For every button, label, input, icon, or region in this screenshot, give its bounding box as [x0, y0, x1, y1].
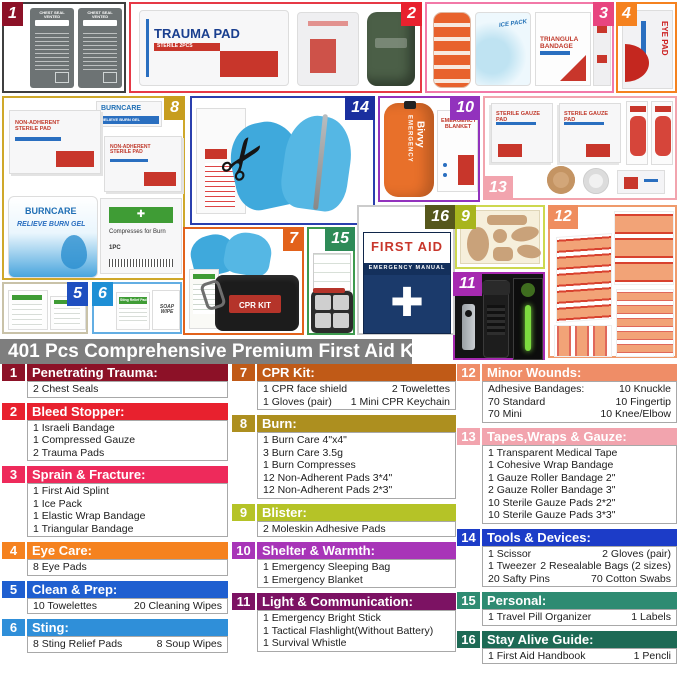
- kit-item-row: 1 Compressed Gauze: [33, 434, 222, 447]
- kit-item: 1 Israeli Bandage: [33, 422, 115, 434]
- kit-item-row: 10 Sterile Gauze Pads 2*2": [488, 497, 671, 510]
- kit-item-row: 8 Sting Relief Pads8 Soup Wipes: [33, 638, 222, 651]
- manual-title: FIRST AID: [364, 240, 450, 254]
- photo-box-bandages: 12: [548, 205, 677, 358]
- section-title: Minor Wounds:: [482, 364, 677, 381]
- kit-item: 1 Pencli: [634, 650, 671, 663]
- kit-item-row: 10 Sterile Gauze Pads 3*3": [488, 509, 671, 522]
- kit-item: 1 Burn Compresses: [263, 459, 356, 471]
- kit-item-row: 1 Travel Pill Organizer1 Labels: [488, 611, 671, 624]
- kit-item: Adhesive Bandages:: [488, 383, 584, 396]
- adhesive-bandage-stack: [614, 211, 674, 285]
- cohesive-tape-roll: [547, 166, 575, 194]
- non-adherent-pad-label: NON-ADHERENT STERILE PAD: [15, 121, 75, 133]
- product-infographic: 1 CHEST SEAL VENTED CHEST SEAL VENTED 2 …: [0, 0, 679, 673]
- kit-item: 1 Emergency Sleeping Bag: [263, 561, 390, 573]
- tactical-flashlight: [483, 280, 509, 358]
- kit-item: 12 Non-Adherent Pads 2*3": [263, 484, 392, 496]
- section-title: Personal:: [482, 592, 677, 609]
- tag-16: 16: [425, 205, 455, 229]
- kit-section-3: 3Sprain & Fracture:1 First Aid Splint1 I…: [2, 466, 228, 537]
- trauma-pad-label: TRAUMA PAD: [154, 27, 240, 41]
- tag-1: 1: [2, 2, 23, 26]
- section-number: 16: [457, 631, 480, 648]
- kit-item-row: 10 Towelettes20 Cleaning Wipes: [33, 600, 222, 613]
- tag-5: 5: [67, 282, 88, 306]
- kit-item: 1 Labels: [631, 611, 671, 624]
- kit-item: 1 Compressed Gauze: [33, 434, 135, 446]
- kit-item: 1 Elastic Wrap Bandage: [33, 510, 145, 522]
- section-title: CPR Kit:: [257, 364, 456, 381]
- kit-item-row: 1 Scissor2 Gloves (pair): [488, 548, 671, 561]
- kit-item: 1 CPR face shield: [263, 383, 347, 396]
- water-drop-graphic: [61, 235, 87, 269]
- label-sheet: [313, 253, 351, 291]
- soap-wipe-label: SOAP WIPE: [155, 305, 179, 316]
- chest-seal-label: CHEST SEAL VENTED: [80, 11, 120, 19]
- section-item-list: 1 CPR face shield2 Towelettes1 Gloves (p…: [257, 381, 456, 410]
- photo-box-sprain-fracture: 3 ICE PACK TRIANGULA BANDAGE: [425, 2, 614, 93]
- kit-section-16: 16Stay Alive Guide:1 First Aid Handbook1…: [457, 631, 677, 665]
- section-item-list: 1 Travel Pill Organizer1 Labels: [482, 609, 677, 626]
- emergency-bivvy: EMERGENCY Bivvy: [384, 103, 434, 197]
- kit-item-row: 1 Tactical Flashlight(Without Battery): [263, 625, 450, 638]
- section-item-list: 8 Eye Pads: [27, 559, 228, 576]
- cpr-pouch: CPR KIT: [215, 275, 299, 331]
- photo-box-personal: 15: [307, 227, 355, 335]
- tag-8: 8: [164, 96, 185, 120]
- section-item-list: Adhesive Bandages:10 Knuckle70 Standard1…: [482, 381, 677, 423]
- section-title: Shelter & Warmth:: [257, 542, 456, 559]
- kit-item-row: 1 Survival Whistle: [263, 637, 450, 650]
- section-number: 3: [2, 466, 25, 483]
- kit-item-row: 1 Triangular Bandage: [33, 523, 222, 536]
- tag-12: 12: [548, 205, 578, 229]
- chest-seal-packet: CHEST SEAL VENTED: [30, 8, 74, 88]
- section-title: Penetrating Trauma:: [27, 364, 228, 381]
- section-title: Clean & Prep:: [27, 581, 228, 598]
- burn-compress-label: Compresses for Burn: [109, 229, 175, 235]
- kit-item: 10 Sterile Gauze Pads 2*2": [488, 497, 615, 509]
- photo-box-clean-prep: 5: [2, 282, 88, 334]
- pbt-bandage-roll: [651, 101, 673, 165]
- section-item-list: 1 First Aid Splint1 Ice Pack1 Elastic Wr…: [27, 483, 228, 537]
- kit-item-row: 1 Burn Compresses: [263, 459, 450, 472]
- eye-pad-label: EYE PAD: [660, 21, 668, 56]
- chest-seal-packet: CHEST SEAL VENTED: [78, 8, 122, 88]
- kit-item: 1 Tweezer: [488, 560, 536, 573]
- kit-item: 10 Towelettes: [33, 600, 97, 613]
- kit-section-4: 4Eye Care:8 Eye Pads: [2, 542, 228, 576]
- section-title: Light & Communication:: [257, 593, 456, 610]
- adhesive-bandage-stack: [554, 325, 612, 357]
- glow-stick-pack: [513, 278, 543, 360]
- triangular-bandage-packet: TRIANGULA BANDAGE: [535, 12, 591, 86]
- section-number: 11: [232, 593, 255, 610]
- kit-item: 70 Mini: [488, 408, 522, 421]
- photo-box-tapes-gauze: 13 STERILE GAUZE PAD STERILE GAUZE PAD: [483, 96, 677, 200]
- splint-roll: [433, 12, 471, 88]
- triangular-bandage-label: TRIANGULA BANDAGE: [540, 37, 588, 51]
- burn-compress-packet: ✚ Compresses for Burn 1PC: [100, 198, 182, 274]
- kit-item-row: 2 Chest Seals: [33, 383, 222, 396]
- chest-seal-label: CHEST SEAL VENTED: [32, 11, 72, 19]
- kit-item-row: 1 Burn Care 4"x4": [263, 434, 450, 447]
- green-cross-icon: ✚: [109, 207, 173, 223]
- kit-section-11: 11Light & Communication:1 Emergency Brig…: [232, 593, 456, 652]
- section-number: 7: [232, 364, 255, 381]
- tag-2: 2: [401, 2, 422, 26]
- section-number: 9: [232, 504, 255, 521]
- non-adherent-pad-box: NON-ADHERENT STERILE PAD: [9, 110, 101, 174]
- kit-section-13: 13Tapes,Wraps & Gauze:1 Transparent Medi…: [457, 428, 677, 524]
- kit-item: 1 First Aid Splint: [33, 485, 109, 497]
- kit-section-12: 12Minor Wounds:Adhesive Bandages:10 Knuc…: [457, 364, 677, 423]
- kit-item-row: 12 Non-Adherent Pads 3*4": [263, 472, 450, 485]
- photo-box-burn: 8 BURNCARE RELIEVE BURN GEL NON-ADHERENT…: [2, 96, 185, 280]
- kit-section-6: 6Sting:8 Sting Relief Pads8 Soup Wipes: [2, 619, 228, 653]
- page-title: 401 Pcs Comprehensive Premium First Aid …: [0, 339, 412, 364]
- kit-item: 20 Cleaning Wipes: [134, 600, 222, 613]
- kit-item: 2 Trauma Pads: [33, 447, 104, 459]
- kit-item-row: Adhesive Bandages:10 Knuckle: [488, 383, 671, 396]
- tag-11: 11: [453, 272, 482, 296]
- kit-item-row: 70 Mini10 Knee/Elbow: [488, 408, 671, 421]
- kit-item-row: 1 Cohesive Wrap Bandage: [488, 459, 671, 472]
- kit-item-row: 1 First Aid Handbook1 Pencli: [488, 650, 671, 663]
- kit-section-10: 10Shelter & Warmth:1 Emergency Sleeping …: [232, 542, 456, 588]
- kit-section-5: 5Clean & Prep:10 Towelettes20 Cleaning W…: [2, 581, 228, 615]
- kit-section-2: 2Bleed Stopper:1 Israeli Bandage1 Compre…: [2, 403, 228, 462]
- kit-item-row: 1 Gloves (pair)1 Mini CPR Keychain: [263, 396, 450, 409]
- kit-item: 2 Chest Seals: [33, 383, 98, 395]
- kit-item: 2 Gloves (pair): [602, 548, 671, 561]
- section-title: Sting:: [27, 619, 228, 636]
- section-number: 2: [2, 403, 25, 420]
- section-number: 1: [2, 364, 25, 381]
- photo-box-moleskin: 9: [455, 205, 545, 269]
- section-number: 5: [2, 581, 25, 598]
- photo-box-manual: 16 FIRST AID EMERGENCY MANUAL ✚: [357, 205, 455, 335]
- tag-10: 10: [450, 96, 480, 120]
- kit-item: 70 Standard: [488, 396, 545, 409]
- burn-gel-box: BURNCARE RELIEVE BURN GEL: [96, 101, 162, 127]
- section-number: 12: [457, 364, 480, 381]
- section-number: 13: [457, 428, 480, 445]
- section-number: 15: [457, 592, 480, 609]
- kit-section-14: 14Tools & Devices:1 Scissor2 Gloves (pai…: [457, 529, 677, 588]
- kit-item: 1 Ice Pack: [33, 498, 82, 510]
- section-title: Bleed Stopper:: [27, 403, 228, 420]
- kit-item: 1 Burn Care 4"x4": [263, 434, 347, 446]
- kit-item: 1 Gloves (pair): [263, 396, 332, 409]
- tag-7: 7: [283, 227, 304, 251]
- kit-item: 1 Mini CPR Keychain: [351, 396, 450, 409]
- section-item-list: 1 Burn Care 4"x4"3 Burn Care 3.5g1 Burn …: [257, 432, 456, 499]
- section-number: 6: [2, 619, 25, 636]
- kit-item: 1 Tactical Flashlight(Without Battery): [263, 625, 433, 637]
- tag-15: 15: [325, 227, 355, 251]
- kit-item: 10 Fingertip: [616, 396, 671, 409]
- section-item-list: 10 Towelettes20 Cleaning Wipes: [27, 598, 228, 615]
- sting-relief-packet: Sting Relief Pad: [116, 292, 150, 330]
- kit-item-row: 1 First Aid Splint: [33, 485, 222, 498]
- adhesive-bandage-stack: [616, 289, 674, 357]
- tag-3: 3: [593, 2, 614, 26]
- kit-item: 10 Knee/Elbow: [600, 408, 671, 421]
- emergency-blanket-packet: EMERGENCY BLANKET: [437, 110, 478, 192]
- tag-13: 13: [483, 176, 513, 200]
- photo-box-light: 11: [453, 272, 545, 360]
- sterile-gauze-box: STERILE GAUZE PAD: [491, 103, 553, 163]
- first-aid-manual: FIRST AID EMERGENCY MANUAL ✚: [363, 232, 451, 334]
- kit-section-9: 9Blister:2 Moleskin Adhesive Pads: [232, 504, 456, 538]
- kit-item: 1 Triangular Bandage: [33, 523, 133, 535]
- survival-whistle: [462, 304, 475, 350]
- towelette-packet: [8, 290, 48, 330]
- section-title: Blister:: [257, 504, 456, 521]
- kit-item-row: 3 Burn Care 3.5g: [263, 447, 450, 460]
- adhesive-bandage-stack: [556, 233, 612, 323]
- kit-item-row: 1 Emergency Blanket: [263, 574, 450, 587]
- section-number: 4: [2, 542, 25, 559]
- pill-organizer: [311, 291, 353, 333]
- kit-item-row: 70 Standard10 Fingertip: [488, 396, 671, 409]
- kit-item: 1 Emergency Bright Stick: [263, 612, 381, 624]
- photo-box-bleed-stopper: 2 TRAUMA PAD STERILE 2PCS: [129, 2, 422, 93]
- burn-gel-pouch-sublabel: RELIEVE BURN GEL: [17, 221, 85, 228]
- kit-item: 10 Knuckle: [619, 383, 671, 396]
- photo-box-eye-pad: 4 EYE PAD: [616, 2, 677, 93]
- section-number: 14: [457, 529, 480, 546]
- kit-item: 8 Eye Pads: [33, 561, 87, 573]
- section-item-list: 1 Emergency Bright Stick1 Tactical Flash…: [257, 610, 456, 652]
- kit-section-1: 1Penetrating Trauma:2 Chest Seals: [2, 364, 228, 398]
- pbt-bandage-roll: [626, 101, 648, 165]
- photo-box-shelter: 10 EMERGENCY Bivvy EMERGENCY BLANKET: [378, 96, 480, 202]
- kit-item: 1 First Aid Handbook: [488, 650, 585, 663]
- kit-item: 1 Gauze Roller Bandage 2": [488, 472, 615, 484]
- white-cross-icon: ✚: [364, 277, 450, 329]
- kit-item: 70 Cotton Swabs: [591, 573, 671, 586]
- burn-compress-count: 1PC: [109, 245, 121, 251]
- bivvy-label-1: EMERGENCY: [406, 115, 412, 163]
- bandage-packet-small: [617, 170, 665, 194]
- kit-section-15: 15Personal:1 Travel Pill Organizer1 Labe…: [457, 592, 677, 626]
- section-number: 8: [232, 415, 255, 432]
- trauma-pad-packet: TRAUMA PAD STERILE 2PCS: [139, 10, 289, 86]
- ice-pack-label: ICE PACK: [498, 19, 527, 29]
- burn-gel-box-sublabel: RELIEVE BURN GEL: [101, 118, 140, 122]
- tag-6: 6: [92, 282, 113, 306]
- kit-item: 20 Safty Pins: [488, 573, 550, 586]
- clear-tape-roll: [583, 168, 609, 194]
- section-title: Stay Alive Guide:: [482, 631, 677, 648]
- kit-item-row: 1 Ice Pack: [33, 498, 222, 511]
- burn-gel-pouch: BURNCARE RELIEVE BURN GEL: [8, 196, 98, 278]
- kit-item-row: 20 Safty Pins70 Cotton Swabs: [488, 573, 671, 586]
- kit-item: 8 Soup Wipes: [157, 638, 222, 651]
- kit-item-row: 1 CPR face shield2 Towelettes: [263, 383, 450, 396]
- section-item-list: 2 Moleskin Adhesive Pads: [257, 521, 456, 538]
- section-item-list: 8 Sting Relief Pads8 Soup Wipes: [27, 636, 228, 653]
- burn-gel-box-brand: BURNCARE: [101, 105, 141, 112]
- ice-pack: ICE PACK: [475, 12, 531, 86]
- compressed-gauze-packet: [297, 12, 359, 86]
- kit-item: 3 Burn Care 3.5g: [263, 447, 343, 459]
- tag-9: 9: [455, 205, 476, 229]
- kit-item-row: 1 Elastic Wrap Bandage: [33, 510, 222, 523]
- photo-box-sting: 6 Sting Relief Pad SOAP WIPE: [92, 282, 182, 334]
- kit-item: 2 Resealable Bags (2 sizes): [540, 560, 671, 573]
- kit-item-row: 12 Non-Adherent Pads 2*3": [263, 484, 450, 497]
- emergency-blanket-label: EMERGENCY BLANKET: [441, 119, 475, 131]
- kit-item-row: 1 Tweezer2 Resealable Bags (2 sizes): [488, 560, 671, 573]
- bivvy-label-2: Bivvy: [414, 121, 425, 148]
- kit-item-row: 8 Eye Pads: [33, 561, 222, 574]
- photo-box-tools: 14 ✂: [190, 96, 375, 225]
- section-title: Sprain & Fracture:: [27, 466, 228, 483]
- kit-item-row: 1 Emergency Bright Stick: [263, 612, 450, 625]
- section-title: Eye Care:: [27, 542, 228, 559]
- non-adherent-pad-box: NON-ADHERENT STERILE PAD: [104, 136, 182, 192]
- section-title: Tapes,Wraps & Gauze:: [482, 428, 677, 445]
- kit-item: 12 Non-Adherent Pads 3*4": [263, 472, 392, 484]
- trauma-pad-sublabel: STERILE 2PCS: [157, 44, 193, 49]
- sting-relief-label: Sting Relief Pad: [120, 299, 147, 303]
- kit-item-row: 2 Trauma Pads: [33, 447, 222, 460]
- kit-item: 2 Towelettes: [392, 383, 450, 396]
- kit-item-row: 1 Israeli Bandage: [33, 422, 222, 435]
- kit-item: 1 Scissor: [488, 548, 531, 561]
- photo-box-chest-seals: 1 CHEST SEAL VENTED CHEST SEAL VENTED: [2, 2, 126, 93]
- kit-item: 1 Survival Whistle: [263, 637, 346, 649]
- list-column-right: 12Minor Wounds:Adhesive Bandages:10 Knuc…: [457, 364, 677, 669]
- cpr-pouch-label: CPR KIT: [239, 301, 271, 310]
- burn-gel-pouch-brand: BURNCARE: [25, 207, 77, 216]
- kit-section-8: 8Burn:1 Burn Care 4"x4"3 Burn Care 3.5g1…: [232, 415, 456, 499]
- kit-item: 1 Transparent Medical Tape: [488, 447, 617, 459]
- kit-item: 2 Moleskin Adhesive Pads: [263, 523, 386, 535]
- section-title: Burn:: [257, 415, 456, 432]
- list-column-left: 1Penetrating Trauma:2 Chest Seals2Bleed …: [2, 364, 228, 658]
- section-title: Tools & Devices:: [482, 529, 677, 546]
- kit-item: 8 Sting Relief Pads: [33, 638, 122, 651]
- kit-item-row: 2 Moleskin Adhesive Pads: [263, 523, 450, 536]
- section-item-list: 1 Transparent Medical Tape1 Cohesive Wra…: [482, 445, 677, 524]
- kit-item-row: 1 Transparent Medical Tape: [488, 447, 671, 460]
- manual-subtitle: EMERGENCY MANUAL: [364, 266, 450, 272]
- kit-item-row: 1 Gauze Roller Bandage 2": [488, 472, 671, 485]
- section-item-list: 2 Chest Seals: [27, 381, 228, 398]
- kit-item-row: 1 Emergency Sleeping Bag: [263, 561, 450, 574]
- section-number: 10: [232, 542, 255, 559]
- list-column-middle: 7CPR Kit:1 CPR face shield2 Towelettes1 …: [232, 364, 456, 657]
- kit-item: 2 Gauze Roller Bandage 3": [488, 484, 615, 496]
- sterile-gauze-box: STERILE GAUZE PAD: [559, 103, 621, 163]
- kit-item: 10 Sterile Gauze Pads 3*3": [488, 509, 615, 521]
- kit-item: 1 Cohesive Wrap Bandage: [488, 459, 613, 471]
- soap-wipe-box: SOAP WIPE: [152, 290, 180, 330]
- non-adherent-pad-label: NON-ADHERENT STERILE PAD: [110, 145, 165, 156]
- kit-item: 1 Emergency Blanket: [263, 574, 363, 586]
- section-item-list: 1 Israeli Bandage1 Compressed Gauze2 Tra…: [27, 420, 228, 462]
- tag-4: 4: [616, 2, 637, 26]
- kit-item: 1 Travel Pill Organizer: [488, 611, 591, 624]
- photo-box-cpr: 7 CPR KIT: [183, 227, 304, 335]
- kit-item-row: 2 Gauze Roller Bandage 3": [488, 484, 671, 497]
- section-item-list: 1 First Aid Handbook1 Pencli: [482, 648, 677, 665]
- tag-14: 14: [345, 96, 375, 120]
- kit-section-7: 7CPR Kit:1 CPR face shield2 Towelettes1 …: [232, 364, 456, 410]
- section-item-list: 1 Emergency Sleeping Bag1 Emergency Blan…: [257, 559, 456, 588]
- section-item-list: 1 Scissor2 Gloves (pair)1 Tweezer2 Resea…: [482, 546, 677, 588]
